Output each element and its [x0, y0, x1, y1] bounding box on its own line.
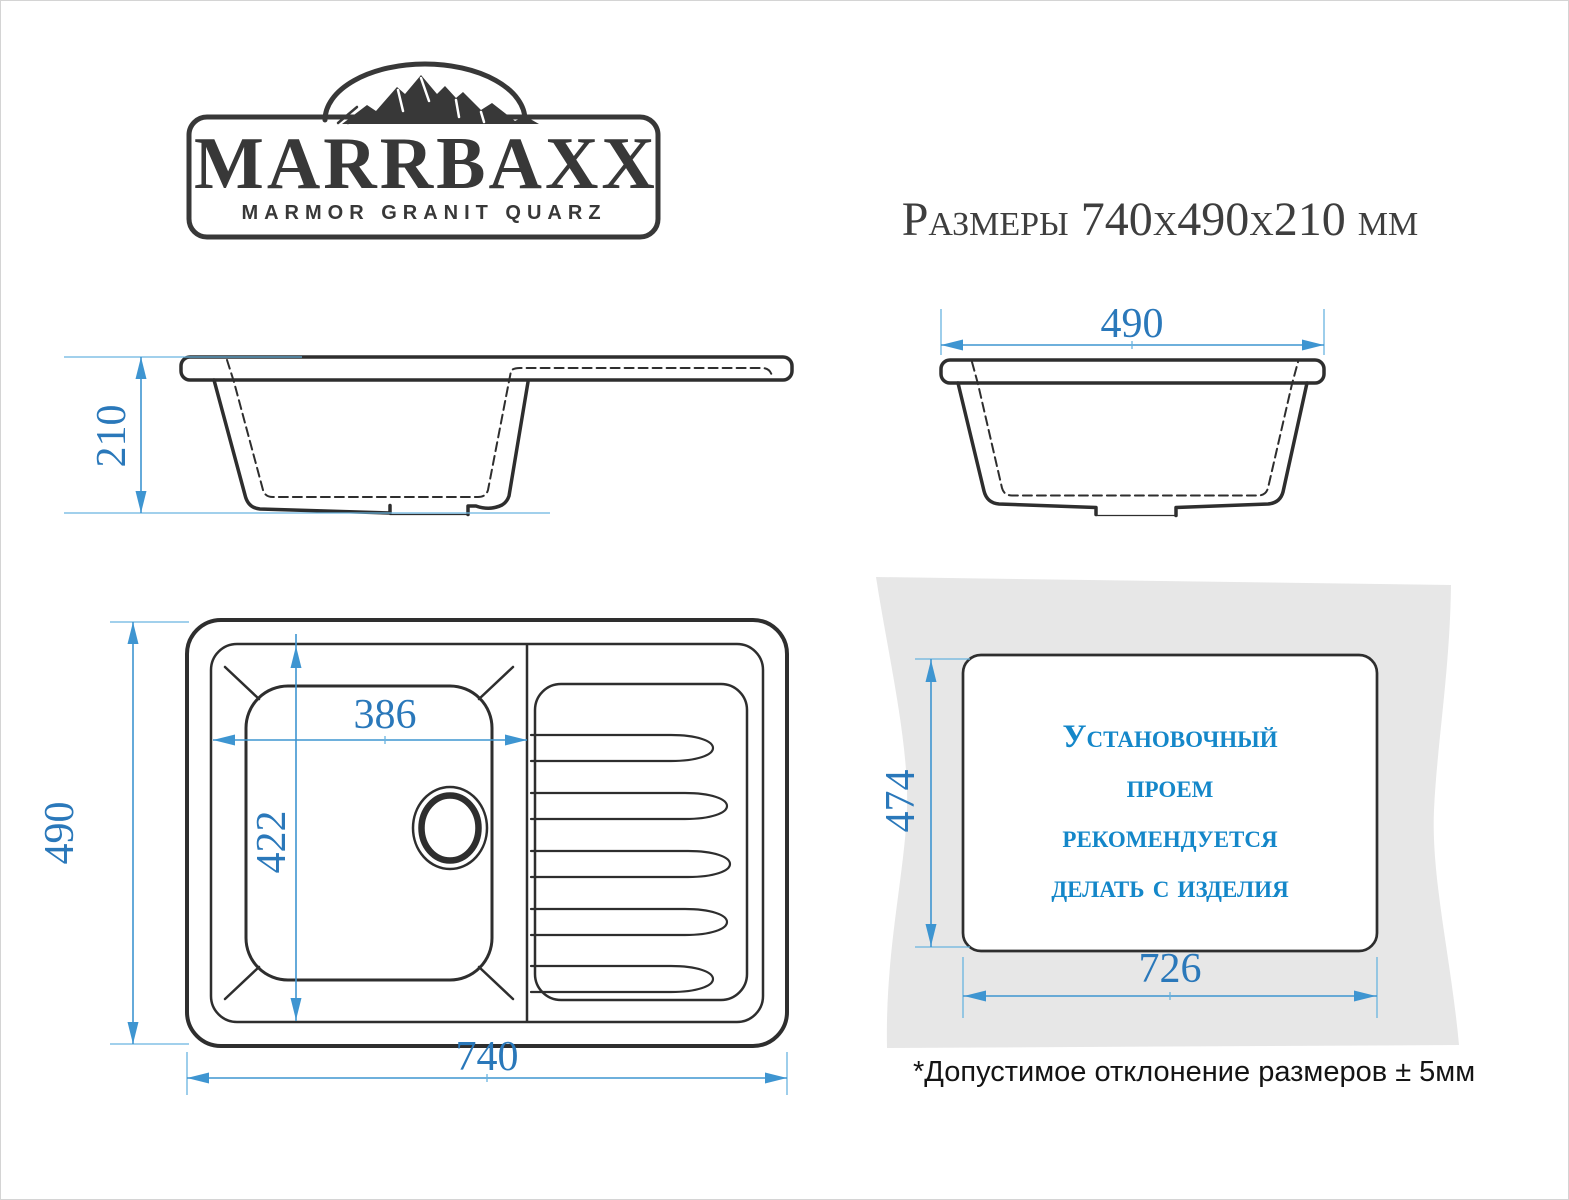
- arrow-up-icon: [128, 622, 139, 644]
- cutout-note: Установочный проем рекомендуется делать …: [980, 712, 1360, 912]
- top-width-label: 490: [37, 788, 83, 878]
- front-width-label: 490: [1072, 301, 1192, 347]
- side-bowl-right-wall: [468, 382, 528, 515]
- bowl-length-label: 386: [320, 692, 450, 738]
- cutout-note-line: делать с изделия: [1051, 862, 1288, 912]
- side-bowl-left-wall: [214, 380, 390, 513]
- arrow-down-icon: [128, 1022, 139, 1044]
- cutout-note-line: Установочный: [1062, 712, 1277, 762]
- cutout-width-label: 474: [878, 756, 924, 846]
- cutout-length-label: 726: [1110, 946, 1230, 992]
- arrow-right-icon: [765, 1073, 787, 1084]
- side-depth-label: 210: [89, 391, 135, 481]
- arrow-left-icon: [187, 1073, 209, 1084]
- side-section-view: [64, 357, 792, 515]
- top-width-extension-lines: [110, 622, 189, 1044]
- front-rim: [941, 360, 1324, 383]
- tolerance-footnote: *Допустимое отклонение размеров ± 5мм: [913, 1056, 1475, 1089]
- bowl-width-label: 422: [249, 797, 295, 887]
- arrow-right-icon: [1302, 340, 1324, 351]
- cutout-note-line: проем: [1127, 762, 1214, 812]
- arrow-left-icon: [941, 340, 963, 351]
- brand-tagline: MARMOR GRANIT QUARZ: [194, 202, 654, 225]
- cutout-note-line: рекомендуется: [1062, 812, 1277, 862]
- arrow-up-icon: [136, 357, 147, 379]
- page-title: Размеры 740х490х210 мм: [880, 192, 1440, 247]
- arrow-down-icon: [136, 491, 147, 513]
- top-length-label: 740: [427, 1034, 547, 1080]
- sink-dimension-drawing: MARRBAXX MARMOR GRANIT QUARZ Размеры 740…: [0, 0, 1569, 1200]
- brand-name: MARRBAXX: [194, 128, 654, 200]
